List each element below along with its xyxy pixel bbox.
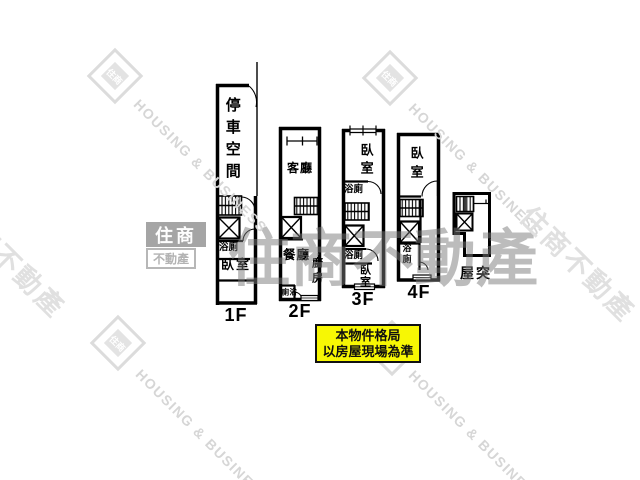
disclaimer-line1: 本物件格局 <box>335 328 400 344</box>
disclaimer-note: 本物件格局 以房屋現場為準 <box>315 324 421 363</box>
room-label-living: 客廳 <box>287 162 313 175</box>
floor-label-roof: 屋突 <box>460 266 492 281</box>
floor-label-4f: 4F <box>402 283 436 302</box>
room-label-kitchen: 廚房 <box>310 257 322 287</box>
window-symbol <box>301 296 318 301</box>
room-label-bath-4f: 浴廁 <box>401 243 410 265</box>
room-label-bath-3f-bottom: 浴廁 <box>344 251 363 261</box>
floorplan-image: 停車空間 浴廁 臥室 1F 客廳 餐廳 廚房 浴廁 2F 臥室 浴廁 浴廁 臥室… <box>0 0 640 480</box>
window-symbol <box>413 275 431 280</box>
room-label-bath-3f-top: 浴廁 <box>344 185 363 195</box>
elevator-symbol <box>282 217 302 238</box>
elevator-symbol <box>345 226 364 247</box>
floor-label-2f: 2F <box>284 302 316 321</box>
door-arc <box>368 182 381 195</box>
stairs-symbol <box>295 198 319 215</box>
floorplan-drawing <box>0 0 640 480</box>
disclaimer-line2: 以房屋現場為準 <box>322 344 413 360</box>
elevator-symbol <box>400 222 419 243</box>
door-arc <box>243 229 255 241</box>
floorplan-roof <box>453 192 492 257</box>
window-symbol <box>350 126 376 136</box>
door-arc <box>366 249 378 261</box>
door-arc <box>422 181 438 197</box>
room-label-bath-1f: 浴廁 <box>219 243 238 253</box>
elevator-symbol <box>219 218 240 239</box>
door-arc <box>242 197 255 210</box>
stairs-symbol <box>345 203 369 220</box>
brand-badge-watermark: 住商 不動產 <box>146 222 206 269</box>
room-label-bedroom-1f: 臥室 <box>221 258 251 272</box>
room-label-bedroom-3f-bottom: 臥室 <box>358 264 370 288</box>
room-label-bedroom-4f: 臥室 <box>409 146 423 188</box>
brand-badge-top: 住商 <box>146 222 206 247</box>
room-label-parking: 停車空間 <box>224 97 240 197</box>
room-label-bath-2f: 浴廁 <box>281 288 297 302</box>
stairs-symbol <box>219 196 242 215</box>
floor-label-1f: 1F <box>220 306 252 325</box>
floor-label-3f: 3F <box>347 290 379 309</box>
room-label-bedroom-3f-top: 臥室 <box>359 143 373 183</box>
stairs-symbol <box>457 197 474 212</box>
brand-badge-bottom: 不動產 <box>146 248 196 269</box>
door-arc <box>420 262 429 270</box>
garage-door-arc <box>249 86 257 107</box>
window-symbol <box>287 137 317 146</box>
elevator-symbol <box>457 214 473 231</box>
room-label-dining: 餐廳 <box>283 249 310 262</box>
